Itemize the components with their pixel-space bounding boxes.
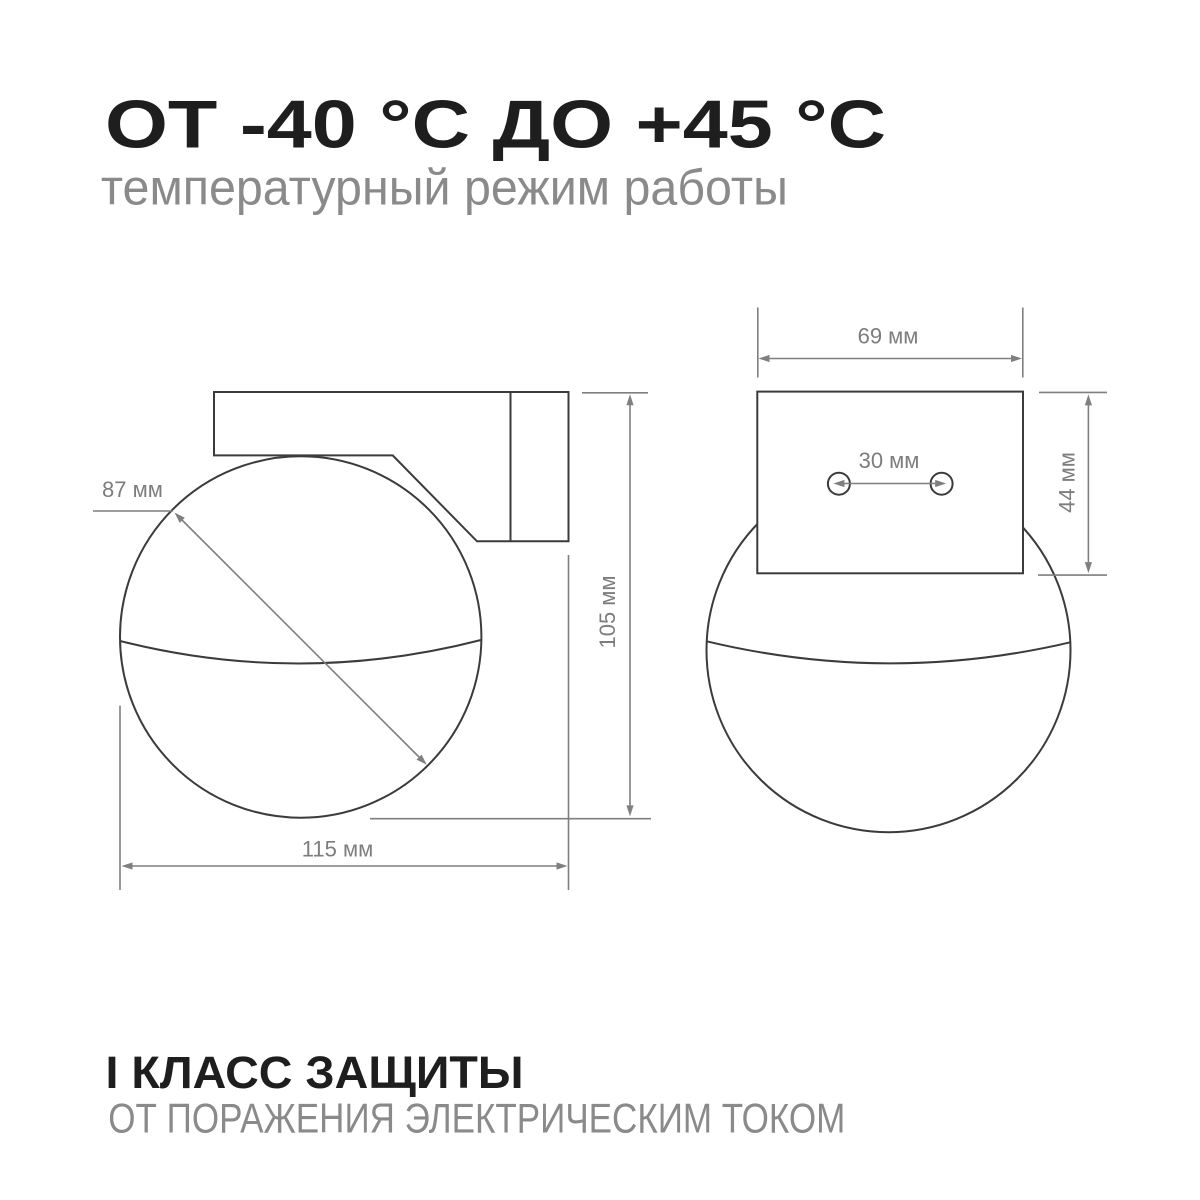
svg-text:87 мм: 87 мм: [102, 477, 163, 502]
svg-text:105 мм: 105 мм: [595, 575, 620, 648]
svg-text:I КЛАСС ЗАЩИТЫ: I КЛАСС ЗАЩИТЫ: [106, 1047, 524, 1098]
svg-text:температурный режим работы: температурный режим работы: [101, 160, 788, 216]
svg-text:44 мм: 44 мм: [1054, 452, 1079, 513]
svg-text:ОТ -40 °С ДО +45 °С: ОТ -40 °С ДО +45 °С: [105, 87, 886, 163]
svg-text:30 мм: 30 мм: [859, 448, 920, 473]
svg-text:ОТ ПОРАЖЕНИЯ ЭЛЕКТРИЧЕСКИМ ТОК: ОТ ПОРАЖЕНИЯ ЭЛЕКТРИЧЕСКИМ ТОКОМ: [108, 1094, 845, 1141]
svg-text:69 мм: 69 мм: [858, 324, 919, 349]
svg-text:115 мм: 115 мм: [302, 837, 373, 862]
